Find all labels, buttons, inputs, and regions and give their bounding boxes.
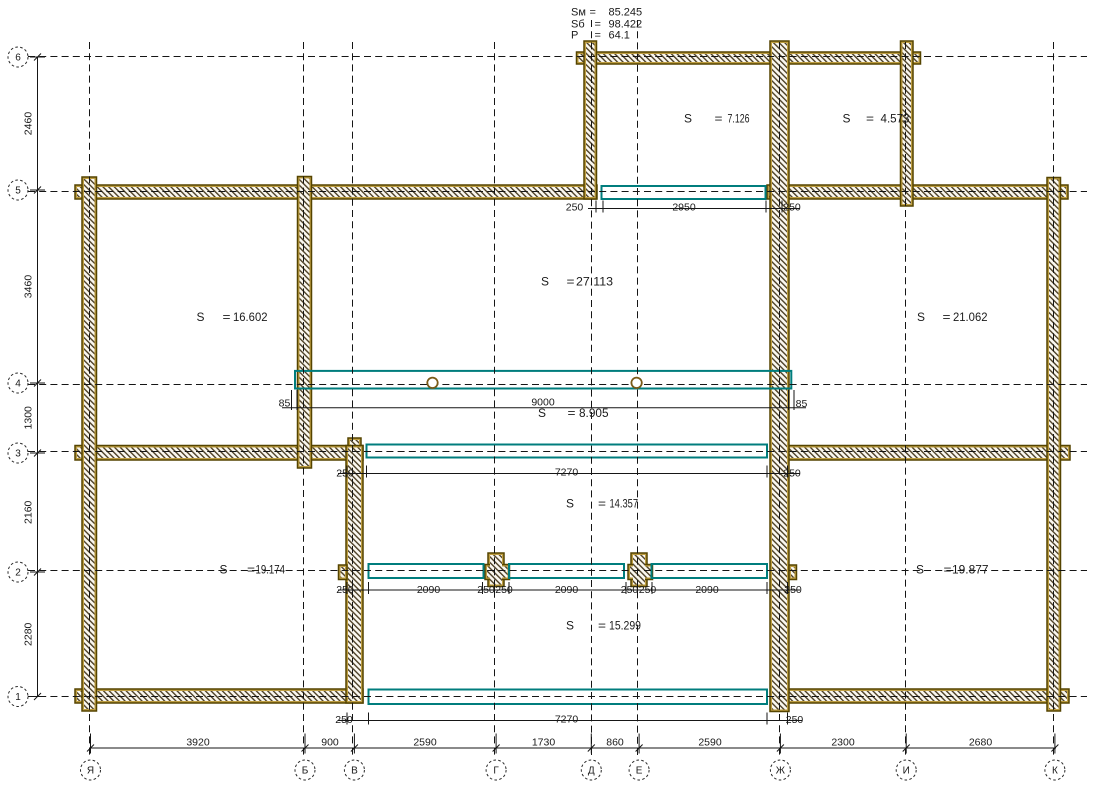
svg-text:2680: 2680 bbox=[969, 737, 993, 749]
svg-text:1300: 1300 bbox=[23, 406, 35, 430]
svg-text:1: 1 bbox=[15, 692, 21, 703]
svg-text:7270: 7270 bbox=[555, 467, 579, 479]
svg-text:Е: Е bbox=[636, 766, 643, 777]
svg-text:2160: 2160 bbox=[23, 500, 35, 524]
svg-text:7270: 7270 bbox=[555, 714, 579, 726]
svg-text:Я: Я bbox=[87, 766, 94, 777]
svg-text:2: 2 bbox=[15, 568, 21, 579]
svg-text:Д: Д bbox=[588, 766, 595, 777]
svg-text:250: 250 bbox=[621, 584, 639, 596]
svg-text:И: И bbox=[903, 766, 910, 777]
svg-text:Ж: Ж bbox=[776, 766, 786, 777]
svg-text:85: 85 bbox=[279, 398, 291, 410]
svg-text:В: В bbox=[351, 766, 358, 777]
svg-text:250: 250 bbox=[783, 468, 801, 480]
svg-text:250: 250 bbox=[784, 584, 802, 596]
svg-text:К: К bbox=[1052, 766, 1058, 777]
svg-text:3920: 3920 bbox=[186, 737, 210, 749]
svg-text:250: 250 bbox=[335, 714, 353, 726]
svg-text:2460: 2460 bbox=[23, 112, 35, 136]
svg-text:250: 250 bbox=[783, 202, 801, 214]
svg-text:2090: 2090 bbox=[417, 584, 441, 596]
svg-text:900: 900 bbox=[321, 737, 339, 749]
svg-text:2090: 2090 bbox=[695, 584, 719, 596]
svg-text:2590: 2590 bbox=[698, 737, 722, 749]
svg-text:860: 860 bbox=[606, 737, 624, 749]
svg-text:2280: 2280 bbox=[23, 622, 35, 646]
svg-text:3460: 3460 bbox=[23, 275, 35, 299]
svg-text:Б: Б bbox=[302, 766, 309, 777]
svg-text:4: 4 bbox=[15, 379, 21, 390]
svg-text:250: 250 bbox=[566, 202, 584, 214]
svg-text:Г: Г bbox=[493, 766, 499, 777]
svg-text:85: 85 bbox=[796, 398, 808, 410]
svg-text:6: 6 bbox=[15, 53, 21, 64]
svg-text:2590: 2590 bbox=[413, 737, 437, 749]
svg-text:2950: 2950 bbox=[672, 202, 696, 214]
svg-text:5: 5 bbox=[15, 186, 21, 197]
svg-text:250: 250 bbox=[786, 714, 804, 726]
svg-text:2300: 2300 bbox=[831, 737, 855, 749]
svg-text:250: 250 bbox=[477, 584, 495, 596]
svg-text:250: 250 bbox=[639, 584, 657, 596]
svg-text:1730: 1730 bbox=[532, 737, 556, 749]
svg-text:250: 250 bbox=[336, 468, 354, 480]
svg-text:250: 250 bbox=[495, 584, 513, 596]
svg-text:250: 250 bbox=[336, 584, 354, 596]
svg-text:2090: 2090 bbox=[555, 584, 579, 596]
svg-text:3: 3 bbox=[15, 449, 21, 460]
